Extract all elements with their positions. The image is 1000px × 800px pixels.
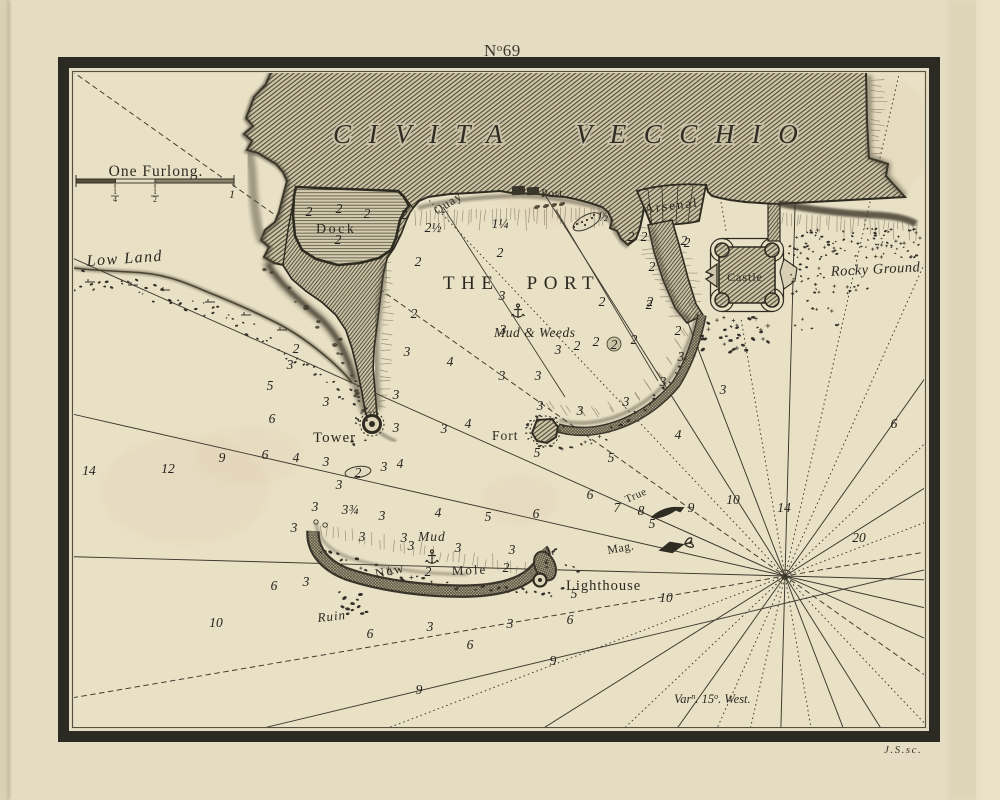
svg-text:3: 3 — [290, 520, 298, 535]
svg-text:3: 3 — [622, 394, 630, 409]
svg-text:3: 3 — [440, 421, 448, 436]
svg-text:6: 6 — [262, 447, 269, 462]
svg-text:2: 2 — [599, 294, 606, 309]
svg-text:10: 10 — [726, 492, 740, 507]
svg-text:3: 3 — [392, 387, 400, 402]
svg-text:5: 5 — [534, 445, 541, 460]
svg-text:3: 3 — [498, 368, 506, 383]
svg-text:Castle: Castle — [727, 270, 763, 284]
svg-text:2: 2 — [675, 323, 682, 338]
svg-text:5: 5 — [267, 378, 274, 393]
svg-text:Mud: Mud — [417, 529, 446, 544]
svg-text:3: 3 — [508, 542, 516, 557]
svg-text:9: 9 — [688, 500, 695, 515]
svg-text:10: 10 — [659, 590, 673, 605]
svg-text:2: 2 — [574, 338, 581, 353]
svg-text:2: 2 — [681, 233, 688, 248]
svg-text:3: 3 — [534, 368, 542, 383]
svg-text:3: 3 — [554, 342, 562, 357]
svg-text:One Furlong.: One Furlong. — [109, 163, 204, 180]
svg-text:2: 2 — [415, 254, 422, 269]
svg-text:6: 6 — [269, 411, 276, 426]
svg-text:10: 10 — [209, 615, 223, 630]
svg-text:2: 2 — [611, 337, 618, 352]
svg-text:2½: 2½ — [425, 220, 442, 235]
svg-text:Ruin: Ruin — [316, 607, 347, 625]
svg-text:CIVITA VECCHIO: CIVITA VECCHIO — [333, 119, 815, 149]
svg-text:2: 2 — [401, 207, 408, 222]
svg-text:3: 3 — [378, 508, 386, 523]
svg-text:1: 1 — [229, 187, 235, 201]
svg-text:9: 9 — [550, 653, 557, 668]
svg-text:2: 2 — [641, 229, 648, 244]
svg-text:5: 5 — [571, 586, 578, 601]
svg-text:J.S.sc.: J.S.sc. — [884, 744, 922, 756]
svg-text:6: 6 — [567, 612, 574, 627]
svg-text:3: 3 — [659, 374, 667, 389]
svg-text:4: 4 — [465, 416, 472, 431]
svg-text:3: 3 — [506, 616, 514, 631]
svg-text:3: 3 — [499, 322, 507, 337]
svg-text:2: 2 — [306, 204, 313, 219]
svg-text:THE PORT: THE PORT — [443, 273, 600, 294]
svg-text:2: 2 — [335, 232, 342, 247]
svg-text:Tower: Tower — [313, 430, 356, 446]
svg-text:3: 3 — [677, 349, 685, 364]
svg-text:2: 2 — [631, 332, 638, 347]
svg-text:3: 3 — [536, 398, 544, 413]
svg-text:4: 4 — [293, 450, 300, 465]
svg-text:3: 3 — [322, 394, 330, 409]
svg-text:½: ½ — [598, 209, 608, 224]
svg-text:2: 2 — [336, 201, 343, 216]
svg-text:5: 5 — [485, 509, 492, 524]
svg-text:3: 3 — [380, 459, 388, 474]
svg-text:2: 2 — [628, 229, 635, 244]
svg-text:Fort: Fort — [492, 428, 519, 443]
svg-text:6: 6 — [367, 626, 374, 641]
svg-text:4: 4 — [397, 456, 404, 471]
svg-text:2: 2 — [593, 334, 600, 349]
svg-text:3: 3 — [400, 530, 408, 545]
svg-text:2: 2 — [649, 259, 656, 274]
svg-text:Port: Port — [541, 186, 563, 200]
svg-text:Varn. 15o. West.: Varn. 15o. West. — [674, 692, 751, 706]
svg-text:3: 3 — [358, 529, 366, 544]
svg-text:3: 3 — [302, 574, 310, 589]
svg-text:2: 2 — [647, 294, 654, 309]
svg-text:3: 3 — [335, 477, 343, 492]
svg-text:4: 4 — [435, 505, 442, 520]
svg-text:3: 3 — [454, 540, 462, 555]
svg-text:3: 3 — [322, 454, 330, 469]
svg-text:3: 3 — [498, 288, 506, 303]
svg-text:3¾: 3¾ — [341, 502, 359, 517]
svg-text:9: 9 — [219, 450, 226, 465]
svg-text:14: 14 — [82, 463, 96, 478]
svg-text:6: 6 — [467, 637, 474, 652]
svg-text:20: 20 — [852, 530, 866, 545]
svg-text:2: 2 — [355, 465, 362, 480]
svg-text:2: 2 — [411, 306, 418, 321]
svg-text:3: 3 — [403, 344, 411, 359]
svg-text:4: 4 — [675, 427, 682, 442]
svg-text:3: 3 — [392, 420, 400, 435]
svg-text:8: 8 — [638, 503, 645, 518]
svg-text:6: 6 — [533, 506, 540, 521]
svg-text:2: 2 — [425, 564, 432, 579]
svg-text:14: 14 — [777, 500, 791, 515]
svg-text:3: 3 — [286, 357, 294, 372]
svg-text:6: 6 — [891, 416, 898, 431]
svg-text:2: 2 — [497, 245, 504, 260]
svg-text:6: 6 — [271, 578, 278, 593]
svg-text:12: 12 — [161, 461, 175, 476]
svg-text:2: 2 — [503, 560, 510, 575]
svg-text:5: 5 — [608, 450, 615, 465]
svg-text:Mole: Mole — [452, 562, 488, 578]
svg-text:6: 6 — [587, 487, 594, 502]
svg-text:5: 5 — [649, 516, 656, 531]
svg-text:2: 2 — [293, 341, 300, 356]
svg-text:3: 3 — [719, 382, 727, 397]
svg-text:3: 3 — [426, 619, 434, 634]
svg-text:3: 3 — [311, 499, 319, 514]
svg-text:4: 4 — [447, 354, 454, 369]
svg-text:2: 2 — [364, 206, 371, 221]
svg-text:3: 3 — [576, 403, 584, 418]
svg-text:9: 9 — [416, 682, 423, 697]
svg-text:3: 3 — [407, 538, 415, 553]
svg-text:1¼: 1¼ — [492, 216, 509, 231]
